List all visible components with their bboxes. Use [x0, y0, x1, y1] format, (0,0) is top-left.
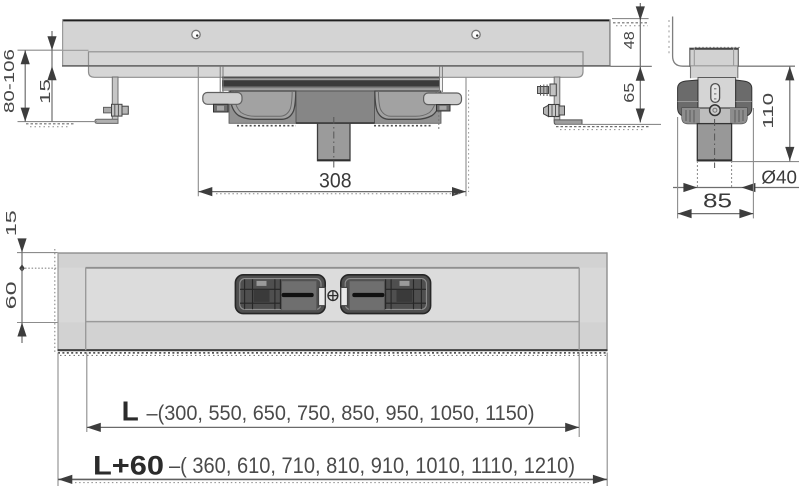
svg-text:L: L — [122, 396, 139, 427]
svg-text:308: 308 — [319, 170, 352, 193]
svg-text:85: 85 — [703, 191, 732, 213]
svg-text:15: 15 — [4, 210, 20, 236]
svg-text:80-106: 80-106 — [2, 49, 18, 113]
svg-text:60: 60 — [4, 281, 20, 309]
svg-text:15: 15 — [38, 79, 54, 104]
svg-text:L+60: L+60 — [93, 450, 164, 480]
svg-text:Ø40: Ø40 — [761, 166, 797, 187]
svg-text:110: 110 — [761, 93, 777, 129]
svg-text:–( 360, 610, 710, 810, 910, 10: –( 360, 610, 710, 810, 910, 1010, 1110, … — [169, 453, 575, 478]
svg-text:48: 48 — [622, 31, 638, 49]
svg-text:–(300, 550, 650, 750, 850, 950: –(300, 550, 650, 750, 850, 950, 1050, 11… — [147, 402, 535, 425]
svg-text:65: 65 — [622, 83, 638, 103]
